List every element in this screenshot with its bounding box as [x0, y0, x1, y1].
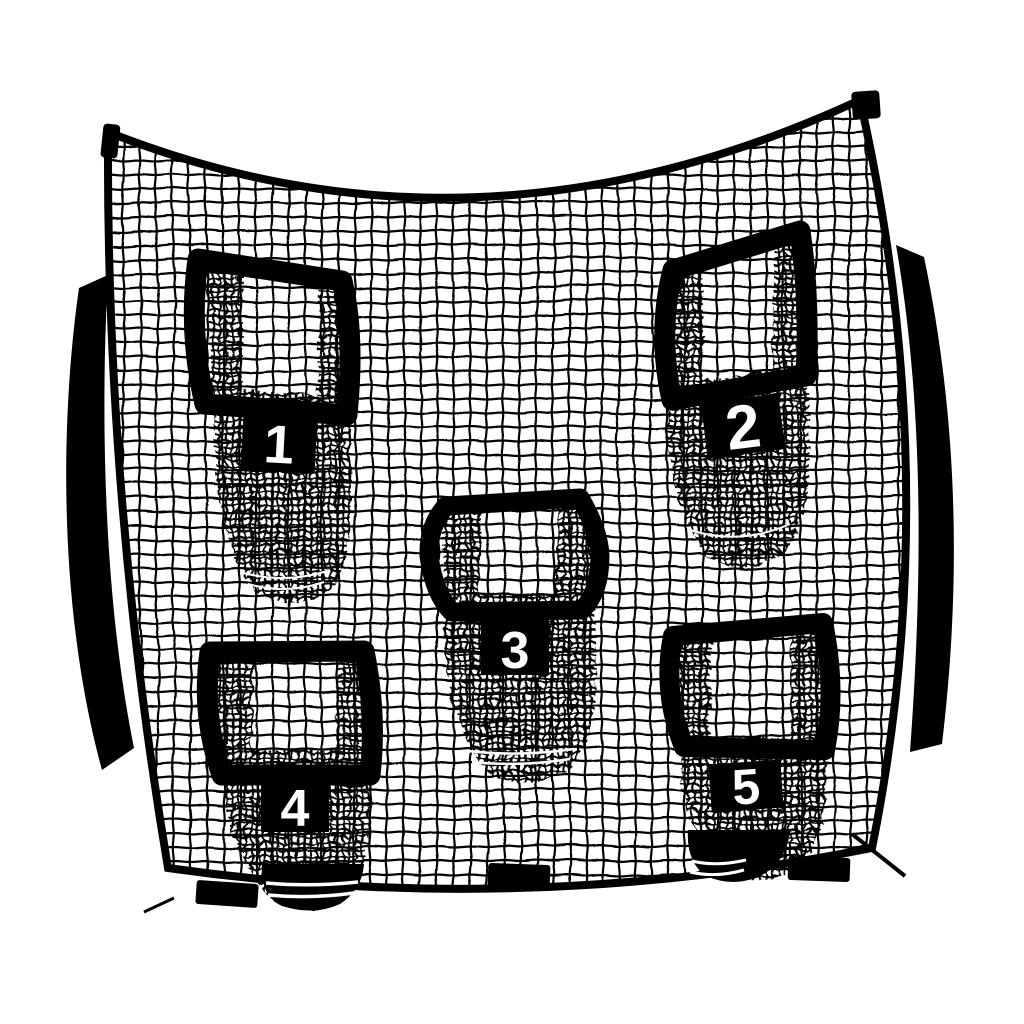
- svg-text:3: 3: [501, 622, 530, 680]
- svg-text:5: 5: [730, 758, 762, 816]
- svg-text:1: 1: [262, 414, 295, 475]
- svg-text:4: 4: [281, 780, 310, 838]
